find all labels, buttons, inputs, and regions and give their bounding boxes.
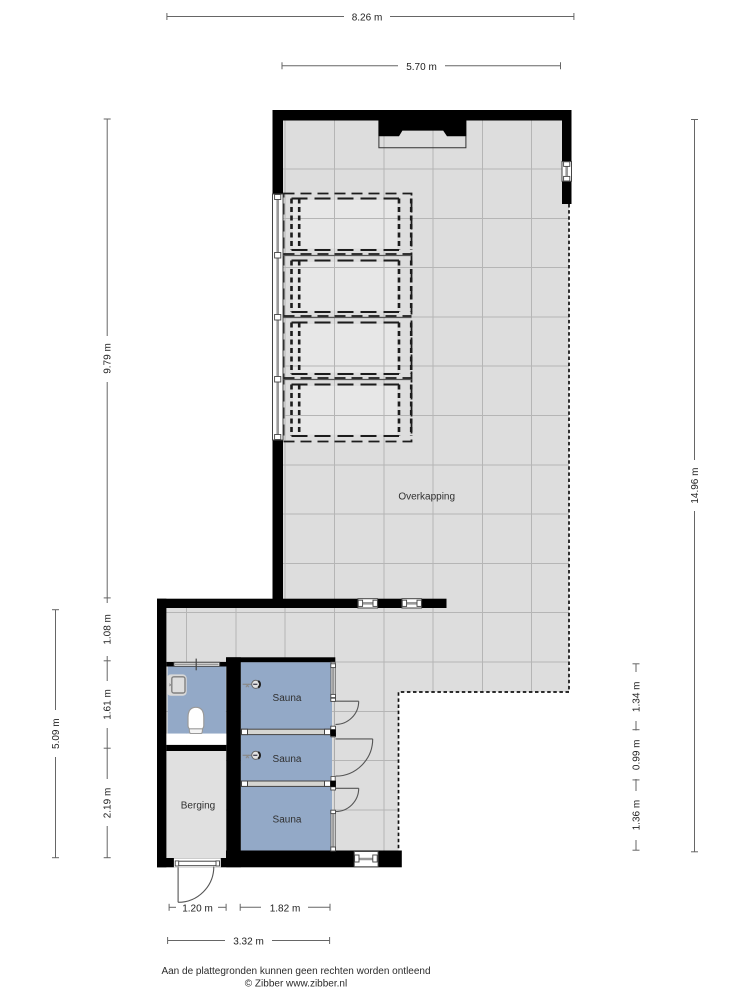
svg-text:1.82 m: 1.82 m <box>270 903 301 914</box>
svg-text:5.70 m: 5.70 m <box>406 62 437 73</box>
svg-text:1.34 m: 1.34 m <box>632 682 643 713</box>
svg-text:Overkapping: Overkapping <box>398 492 455 503</box>
svg-text:5.09 m: 5.09 m <box>51 718 62 749</box>
svg-text:1.36 m: 1.36 m <box>632 800 643 831</box>
svg-text:9.79 m: 9.79 m <box>103 343 114 374</box>
svg-text:1.61 m: 1.61 m <box>103 689 114 720</box>
svg-text:3.32 m: 3.32 m <box>233 937 264 948</box>
svg-text:0.99 m: 0.99 m <box>632 740 643 771</box>
svg-text:14.96 m: 14.96 m <box>690 468 701 504</box>
svg-text:Sauna: Sauna <box>273 814 302 825</box>
svg-text:Sauna: Sauna <box>273 754 302 765</box>
svg-text:1.08 m: 1.08 m <box>103 614 114 645</box>
svg-text:8.26 m: 8.26 m <box>352 13 383 24</box>
svg-text:Berging: Berging <box>181 801 215 812</box>
svg-text:Aan de plattegronden kunnen ge: Aan de plattegronden kunnen geen rechten… <box>161 966 430 977</box>
svg-text:Sauna: Sauna <box>273 693 302 704</box>
svg-text:2.19 m: 2.19 m <box>103 788 114 819</box>
svg-text:1.20 m: 1.20 m <box>182 903 213 914</box>
svg-text:© Zibber www.zibber.nl: © Zibber www.zibber.nl <box>245 978 347 989</box>
